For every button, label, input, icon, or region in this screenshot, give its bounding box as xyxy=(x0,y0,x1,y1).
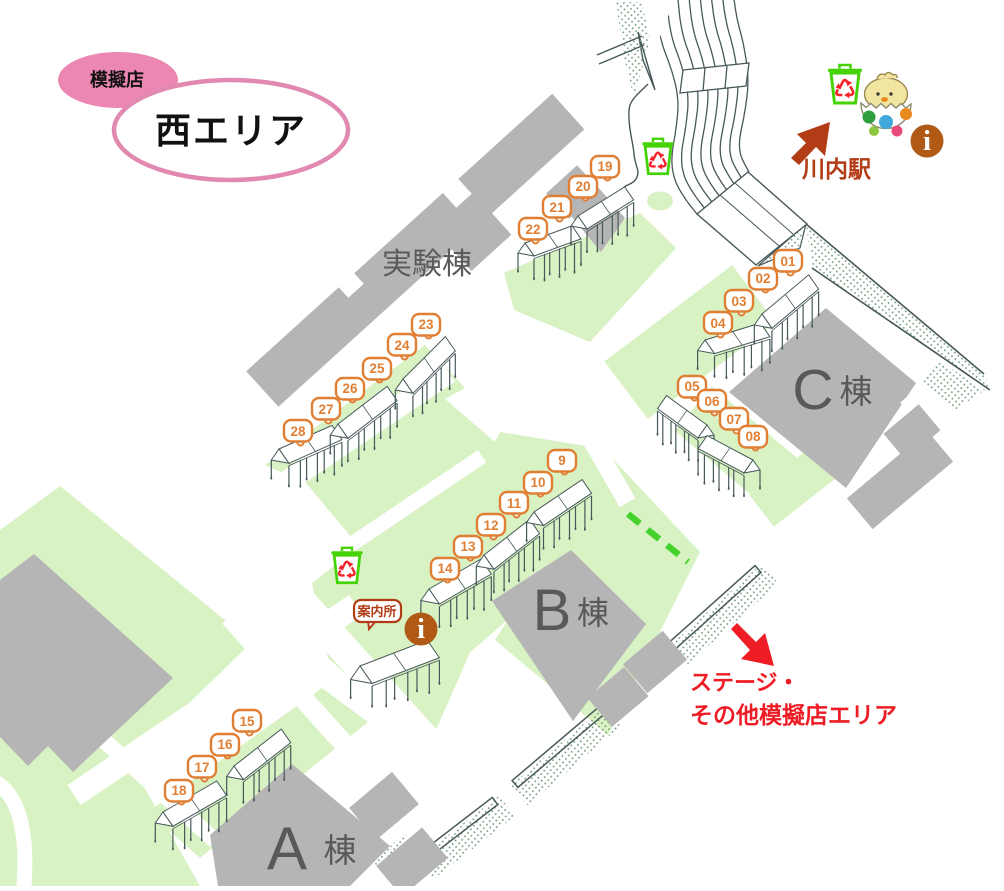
svg-text:模擬店: 模擬店 xyxy=(90,69,144,90)
svg-text:06: 06 xyxy=(704,394,720,409)
svg-text:03: 03 xyxy=(731,294,747,309)
svg-text:棟: 棟 xyxy=(577,595,609,631)
svg-text:棟: 棟 xyxy=(324,832,357,869)
svg-text:08: 08 xyxy=(745,429,761,444)
svg-text:05: 05 xyxy=(684,379,700,394)
svg-text:13: 13 xyxy=(460,539,476,554)
svg-text:02: 02 xyxy=(755,271,770,286)
svg-text:B: B xyxy=(533,578,572,643)
svg-text:C: C xyxy=(792,358,833,422)
svg-text:20: 20 xyxy=(575,179,590,194)
svg-text:22: 22 xyxy=(525,222,540,237)
svg-text:西エリア: 西エリア xyxy=(155,110,307,151)
svg-text:01: 01 xyxy=(780,254,796,269)
svg-text:案内所: 案内所 xyxy=(356,604,396,619)
svg-text:11: 11 xyxy=(507,496,522,511)
svg-text:9: 9 xyxy=(558,453,566,468)
svg-text:川内駅: 川内駅 xyxy=(802,156,871,182)
svg-text:ステージ・: ステージ・ xyxy=(690,670,800,695)
svg-text:18: 18 xyxy=(171,783,187,798)
svg-text:実験棟: 実験棟 xyxy=(382,248,472,281)
svg-text:19: 19 xyxy=(597,159,612,174)
svg-text:23: 23 xyxy=(418,317,434,332)
svg-text:25: 25 xyxy=(369,361,385,376)
svg-text:26: 26 xyxy=(342,381,358,396)
svg-text:17: 17 xyxy=(194,760,209,775)
svg-text:27: 27 xyxy=(318,402,333,417)
svg-text:16: 16 xyxy=(217,737,233,752)
svg-text:15: 15 xyxy=(239,714,255,729)
svg-text:12: 12 xyxy=(483,518,498,533)
svg-text:04: 04 xyxy=(710,316,726,331)
svg-text:10: 10 xyxy=(530,475,545,490)
svg-text:14: 14 xyxy=(437,561,453,576)
svg-text:07: 07 xyxy=(726,412,741,427)
svg-text:21: 21 xyxy=(549,200,565,215)
svg-text:棟: 棟 xyxy=(840,373,873,410)
svg-text:24: 24 xyxy=(394,338,410,353)
svg-text:28: 28 xyxy=(290,424,306,439)
svg-text:その他模擬店エリア: その他模擬店エリア xyxy=(690,702,897,728)
svg-text:A: A xyxy=(267,815,307,882)
